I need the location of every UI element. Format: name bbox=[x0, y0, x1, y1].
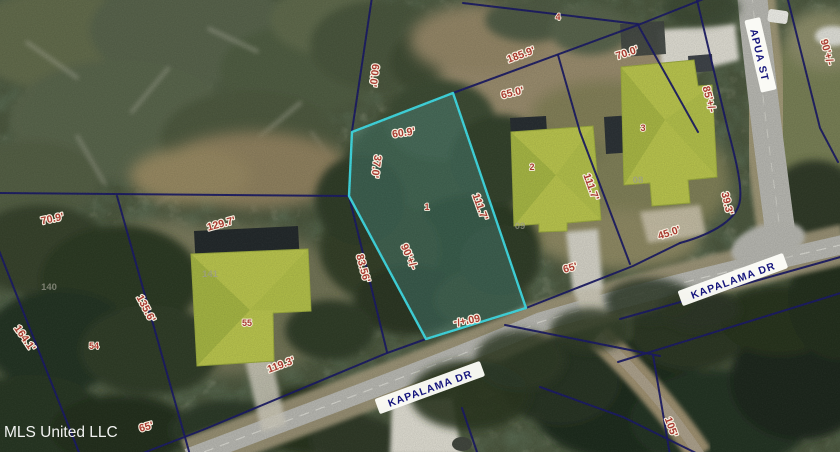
lot-number: 4 bbox=[555, 12, 560, 22]
mls-watermark: MLS United LLC bbox=[4, 424, 118, 441]
lot-number: 3 bbox=[640, 123, 645, 133]
lot-number: 54 bbox=[89, 341, 99, 351]
aerial-parcel-map: 140 141 09 08 60.0' 185.9' 70.0' 65.0' bbox=[0, 0, 840, 452]
map-canvas: 140 141 09 08 60.0' 185.9' 70.0' 65.0' bbox=[0, 0, 840, 452]
lot-number: 2 bbox=[529, 162, 534, 172]
lot-number: 1 bbox=[424, 202, 429, 212]
lot-number: 55 bbox=[242, 318, 252, 328]
